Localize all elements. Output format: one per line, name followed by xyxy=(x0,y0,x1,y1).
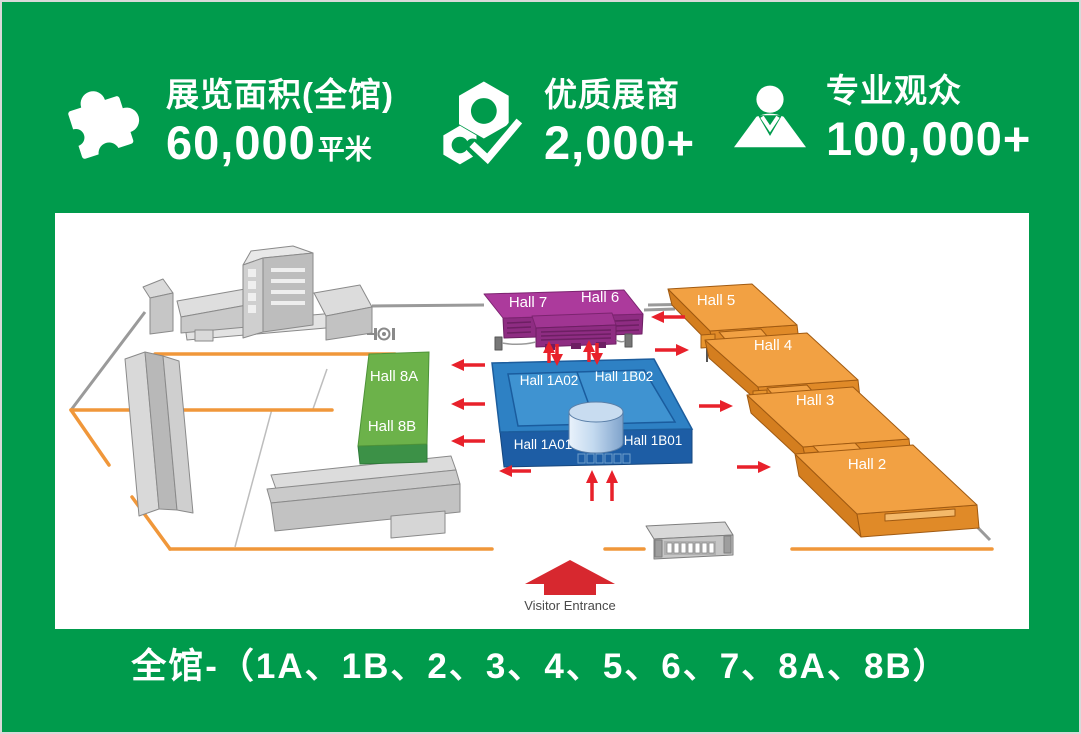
gate-building xyxy=(646,522,733,559)
tall-slab-buildings xyxy=(125,352,193,516)
hall-2-label: Hall 2 xyxy=(848,456,886,473)
hall-3-label: Hall 3 xyxy=(796,392,834,409)
hall-1-building: Hall 1A02 Hall 1B02 Hall 1A01 Hall 1B01 xyxy=(492,359,692,467)
stat-value: 60,000 xyxy=(166,118,316,168)
hall-4-label: Hall 4 xyxy=(754,337,792,354)
footer-hall-list: 全馆-（1A、1B、2、3、4、5、6、7、8A、8B） xyxy=(2,638,1079,689)
convention-center-buildings xyxy=(143,246,372,341)
hall-1a01-label: Hall 1A01 xyxy=(514,437,573,452)
visitor-person-icon xyxy=(730,70,810,170)
stat-title: 展览面积(全馆) xyxy=(166,74,394,116)
orange-halls: Hall 5 Hall 4 Hall 3 Hall 2 xyxy=(668,284,979,537)
stat-exhibition-area: 展览面积(全馆) 60,000 平米 xyxy=(48,74,394,170)
poster-background: { "colors": { "background_green": "#009B… xyxy=(0,0,1081,734)
hexnut-check-icon xyxy=(436,74,528,170)
stat-exhibitors: 优质展商 2,000+ xyxy=(436,74,697,170)
hall-1a02-label: Hall 1A02 xyxy=(520,373,579,388)
visitor-entrance-arrow xyxy=(525,560,615,595)
stat-value: 2,000+ xyxy=(544,118,695,168)
hall-8b-label: Hall 8B xyxy=(368,418,416,435)
hall-7-label: Hall 7 xyxy=(509,294,547,311)
visitor-entrance-label: Visitor Entrance xyxy=(524,598,616,613)
hall-1b02-label: Hall 1B02 xyxy=(595,369,654,384)
hall-8a-label: Hall 8A xyxy=(370,368,418,385)
visitor-entrance: Visitor Entrance xyxy=(524,560,616,613)
stat-title: 优质展商 xyxy=(544,74,697,116)
hall-8-building: Hall 8A Hall 8B xyxy=(358,352,429,464)
stat-title: 专业观众 xyxy=(826,70,1033,112)
puzzle-icon xyxy=(48,74,150,170)
hall-7-6-building: Hall 7 Hall 6 xyxy=(484,289,643,350)
venue-map-panel: Hall 8A Hall 8B Hall 7 Hall 6 xyxy=(55,213,1029,629)
stat-visitors: 专业观众 100,000+ xyxy=(730,70,1033,170)
stat-value: 100,000+ xyxy=(826,114,1031,164)
hall-5-label: Hall 5 xyxy=(697,292,735,309)
stat-unit: 平米 xyxy=(318,128,372,167)
venue-map: Hall 8A Hall 8B Hall 7 Hall 6 xyxy=(55,213,1029,629)
hall-1b01-label: Hall 1B01 xyxy=(624,433,683,448)
hall-6-label: Hall 6 xyxy=(581,289,619,306)
